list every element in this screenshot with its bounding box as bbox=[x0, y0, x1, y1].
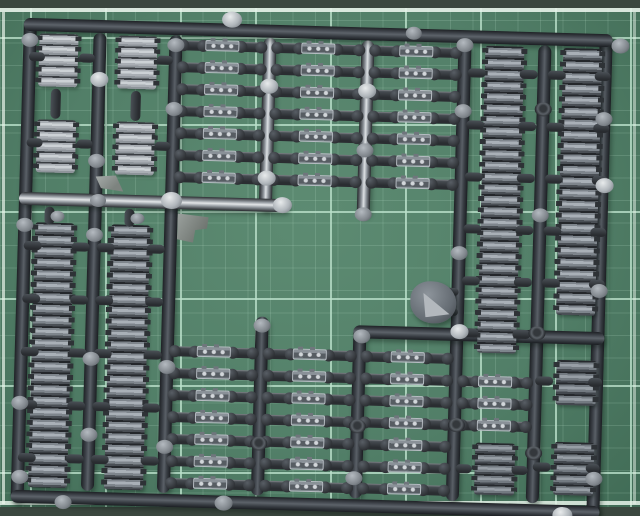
sprue-gate-stub bbox=[142, 403, 160, 412]
runner-pill bbox=[321, 482, 351, 493]
sprue-gate-stub bbox=[141, 456, 159, 465]
track-link bbox=[194, 433, 228, 445]
sprue-gate-stub bbox=[29, 52, 45, 61]
track-link bbox=[388, 439, 422, 451]
runner-pill bbox=[509, 421, 530, 432]
gate-bump bbox=[250, 436, 267, 450]
runner-pill bbox=[419, 463, 449, 474]
track-link bbox=[478, 375, 512, 387]
track-link bbox=[202, 149, 236, 161]
sprue-gate-stub bbox=[67, 401, 85, 410]
track-run-right-inner bbox=[477, 46, 525, 354]
gate-bump bbox=[595, 178, 613, 193]
track-link bbox=[290, 436, 324, 448]
runner-pill bbox=[264, 370, 294, 381]
track-link-row bbox=[182, 39, 262, 52]
runner-pill bbox=[363, 351, 393, 362]
track-link bbox=[205, 61, 239, 73]
runner-pill bbox=[418, 485, 448, 496]
runner-pill bbox=[168, 434, 196, 445]
track-link bbox=[291, 414, 325, 426]
runner-pill bbox=[429, 91, 459, 102]
track-link-row bbox=[179, 171, 259, 184]
runner-pill bbox=[420, 419, 450, 430]
track-link-row bbox=[172, 389, 252, 402]
track-link-row bbox=[374, 66, 457, 79]
runner-pill bbox=[331, 132, 361, 143]
runner-pill bbox=[422, 353, 452, 364]
gate-bump bbox=[257, 170, 275, 185]
runner-pill bbox=[235, 129, 263, 140]
sprue-gate-stub bbox=[24, 241, 42, 250]
runner-pill bbox=[360, 439, 390, 450]
track-link bbox=[203, 105, 237, 117]
track-link bbox=[299, 108, 333, 120]
sprue-gate-stub bbox=[517, 174, 535, 183]
sprue-gate-stub bbox=[511, 466, 527, 475]
sprue-gate-stub bbox=[95, 296, 113, 305]
track-link-row bbox=[265, 457, 349, 470]
track-link bbox=[477, 397, 511, 409]
track-segment-block bbox=[36, 119, 76, 173]
runner-pill bbox=[237, 63, 265, 74]
sprue-gate-stub bbox=[157, 56, 173, 65]
gate-bump bbox=[611, 38, 629, 53]
runner-pill bbox=[368, 155, 398, 166]
runner-pill bbox=[225, 479, 253, 490]
gate-bump bbox=[454, 104, 471, 118]
track-teeth-left bbox=[550, 442, 557, 495]
track-link-row bbox=[373, 88, 456, 101]
gate-bump bbox=[595, 112, 612, 126]
sprue-gate-stub bbox=[50, 89, 61, 119]
track-link bbox=[301, 42, 335, 54]
track-link bbox=[390, 351, 424, 363]
track-link bbox=[477, 419, 511, 431]
track-link-row bbox=[274, 129, 358, 142]
track-link-row bbox=[374, 44, 457, 57]
runner-pill bbox=[325, 350, 355, 361]
sprue-gate-stub bbox=[548, 70, 566, 79]
runner-pill bbox=[427, 179, 457, 190]
runner-pill bbox=[171, 346, 199, 357]
track-link bbox=[298, 152, 332, 164]
track-link bbox=[299, 130, 333, 142]
sprue-gate-stub bbox=[91, 455, 109, 464]
track-link bbox=[388, 417, 422, 429]
sprue-gate-stub bbox=[514, 278, 532, 287]
track-link bbox=[387, 461, 421, 473]
runner-pill bbox=[323, 394, 353, 405]
runner-pill bbox=[324, 372, 354, 383]
track-link-row bbox=[372, 132, 455, 145]
runner-pill bbox=[261, 480, 291, 491]
track-segment-block bbox=[117, 35, 157, 89]
track-link bbox=[197, 345, 231, 357]
track-link bbox=[397, 111, 431, 123]
runner-pill bbox=[362, 373, 392, 384]
runner-pill bbox=[228, 369, 256, 380]
sprue-gate-stub bbox=[130, 91, 141, 121]
track-link-row bbox=[182, 61, 262, 74]
track-link-row bbox=[265, 435, 349, 448]
track-link-row bbox=[275, 85, 359, 98]
gate-bump bbox=[590, 284, 607, 298]
sprue-gate-stub bbox=[462, 276, 480, 285]
track-link bbox=[202, 171, 236, 183]
runner-pill bbox=[169, 412, 197, 423]
runner-pill bbox=[430, 69, 460, 80]
gate-bump bbox=[349, 419, 366, 433]
gate-bump bbox=[50, 211, 64, 223]
sprue-gate-stub bbox=[520, 70, 538, 79]
gate-bump bbox=[585, 472, 602, 486]
gate-bump bbox=[16, 218, 33, 232]
gate-bump bbox=[358, 83, 376, 98]
gate-bump bbox=[450, 324, 468, 339]
runner-pill bbox=[420, 441, 450, 452]
track-link-row bbox=[173, 367, 253, 380]
runner-pill bbox=[235, 107, 263, 118]
sprue-gate-stub bbox=[97, 243, 115, 252]
runner-pill bbox=[421, 375, 451, 386]
gate-bump bbox=[156, 440, 173, 454]
track-link bbox=[204, 83, 238, 95]
runner-pill bbox=[270, 152, 300, 163]
sprue-gate-stub bbox=[468, 68, 486, 77]
gate-bump bbox=[273, 197, 292, 213]
runner-pill bbox=[237, 41, 265, 52]
sprue-gate-stub bbox=[533, 462, 551, 471]
track-link bbox=[293, 348, 327, 360]
runner-pill bbox=[510, 377, 531, 388]
track-link-row bbox=[372, 110, 455, 123]
runner-pill bbox=[330, 154, 360, 165]
track-link-row bbox=[266, 413, 350, 426]
gate-bump bbox=[535, 102, 552, 116]
runner-pill bbox=[169, 390, 197, 401]
sprue-gate-stub bbox=[66, 454, 84, 463]
runner-pill bbox=[360, 461, 390, 472]
gate-bump bbox=[90, 72, 108, 87]
track-link-row bbox=[273, 173, 357, 186]
runner-pill bbox=[333, 66, 363, 77]
track-link-row bbox=[181, 83, 261, 96]
track-teeth-left bbox=[112, 121, 119, 174]
sprue-gate-stub bbox=[92, 402, 110, 411]
track-link-row bbox=[274, 107, 358, 120]
sprue-gate-stub bbox=[515, 226, 533, 235]
gate-bump bbox=[130, 213, 144, 225]
track-link bbox=[193, 477, 227, 489]
track-link-row bbox=[180, 105, 260, 118]
sprue-gate-stub bbox=[147, 244, 165, 253]
gate-bump bbox=[54, 495, 71, 509]
track-link-row bbox=[171, 433, 251, 446]
track-link-row bbox=[461, 419, 527, 432]
runner-pill bbox=[371, 67, 401, 78]
runner-pill bbox=[263, 392, 293, 403]
track-link-row bbox=[365, 372, 448, 385]
sprue-gate-stub bbox=[535, 376, 553, 385]
track-link bbox=[389, 373, 423, 385]
gate-bump bbox=[532, 208, 549, 222]
track-link bbox=[205, 39, 239, 51]
runner-pill bbox=[431, 47, 461, 58]
sprue-gate-stub bbox=[18, 453, 36, 462]
track-link-row bbox=[180, 127, 260, 140]
runner-pill bbox=[263, 414, 293, 425]
track-link-row bbox=[172, 411, 252, 424]
photo-of-sprue-on-cutting-mat bbox=[0, 0, 640, 516]
gate-bump bbox=[355, 207, 372, 221]
sprue-gate-stub bbox=[466, 120, 484, 129]
track-link-row bbox=[364, 416, 447, 429]
runner-pill bbox=[227, 391, 255, 402]
sprue-gate-stub bbox=[546, 122, 564, 131]
sprue-gate-stub bbox=[543, 226, 561, 235]
track-teeth-left bbox=[471, 443, 478, 495]
track-link bbox=[195, 389, 229, 401]
sprue-gate-stub bbox=[518, 122, 536, 131]
runner-pill bbox=[369, 111, 399, 122]
track-link bbox=[398, 67, 432, 79]
sprue-gate-stub bbox=[463, 224, 481, 233]
gate-bump bbox=[88, 154, 105, 168]
runner-pill bbox=[271, 108, 301, 119]
runner-pill bbox=[371, 45, 401, 56]
track-link-row bbox=[174, 345, 254, 358]
runner-pill bbox=[168, 456, 196, 467]
runner-pill bbox=[226, 457, 254, 468]
track-link-row bbox=[170, 477, 250, 490]
track-link-row bbox=[362, 482, 445, 495]
track-link-row bbox=[366, 350, 449, 363]
track-link-row bbox=[264, 479, 348, 492]
runner-pill bbox=[361, 395, 391, 406]
gate-bump bbox=[214, 495, 232, 510]
flat-bracket-part-b bbox=[177, 212, 209, 243]
track-segment-block bbox=[38, 33, 78, 87]
track-link-row bbox=[266, 391, 350, 404]
track-link-row bbox=[171, 455, 251, 468]
gate-bump bbox=[450, 246, 467, 260]
runner-pill bbox=[428, 157, 458, 168]
track-link bbox=[386, 483, 420, 495]
track-teeth-left bbox=[474, 46, 489, 353]
track-link-row bbox=[276, 63, 360, 76]
runner-pill bbox=[428, 135, 458, 146]
runner-pill bbox=[367, 177, 397, 188]
track-link bbox=[301, 64, 335, 76]
runner-pill bbox=[227, 413, 255, 424]
track-link bbox=[195, 411, 229, 423]
runner-pill bbox=[509, 399, 530, 410]
track-link bbox=[297, 174, 331, 186]
sprue-gate-stub bbox=[70, 295, 88, 304]
sprue-gate-stub bbox=[76, 139, 92, 148]
runner-pill bbox=[333, 44, 363, 55]
runner-pill bbox=[331, 110, 361, 121]
runner-pill bbox=[329, 176, 359, 187]
track-teeth-right bbox=[513, 47, 528, 354]
sprue-gate-stub bbox=[22, 294, 40, 303]
track-link-row bbox=[179, 149, 259, 162]
track-link-row bbox=[273, 151, 357, 164]
runner-pill bbox=[359, 483, 389, 494]
sprue-gate-stub bbox=[26, 138, 42, 147]
track-teeth-left bbox=[552, 360, 559, 405]
sprue-gate-stub bbox=[595, 72, 611, 81]
track-link bbox=[196, 367, 230, 379]
track-link bbox=[194, 455, 228, 467]
track-link bbox=[290, 458, 324, 470]
runner-pill bbox=[262, 458, 292, 469]
sprue-gate-stub bbox=[144, 350, 162, 359]
track-run-left-inner bbox=[104, 224, 150, 490]
sprue-gate-stub bbox=[465, 172, 483, 181]
runner-pill bbox=[176, 150, 204, 161]
sprue-gate-stub bbox=[456, 464, 472, 473]
track-link-row bbox=[363, 460, 446, 473]
runner-pill bbox=[273, 64, 303, 75]
sprue-gate-stub bbox=[588, 378, 602, 387]
track-segment-block bbox=[115, 121, 155, 175]
runner-pill bbox=[167, 478, 195, 489]
runner-pill bbox=[229, 347, 257, 358]
runner-pill bbox=[322, 438, 352, 449]
track-segment-block bbox=[474, 443, 515, 496]
runner-pill bbox=[322, 460, 352, 471]
track-link bbox=[396, 155, 430, 167]
runner-pill bbox=[178, 84, 206, 95]
sprue-gate-stub bbox=[72, 242, 90, 251]
track-link-row bbox=[276, 41, 360, 54]
sprue-gate-stub bbox=[154, 142, 170, 151]
track-link-row bbox=[462, 375, 528, 388]
gate-bump bbox=[525, 446, 542, 460]
runner-pill bbox=[429, 113, 459, 124]
runner-pill bbox=[369, 133, 399, 144]
gate-bump bbox=[82, 352, 99, 366]
gate-bump bbox=[167, 38, 184, 52]
track-link bbox=[397, 89, 431, 101]
sprue-gate-stub bbox=[21, 347, 39, 356]
track-link bbox=[291, 392, 325, 404]
track-link-row bbox=[268, 347, 352, 360]
track-link-row bbox=[370, 176, 453, 189]
runner-pill bbox=[273, 42, 303, 53]
sprue-gate-stub bbox=[542, 278, 560, 287]
runner-pill bbox=[177, 128, 205, 139]
runner-mid-left bbox=[19, 191, 289, 212]
track-link bbox=[203, 127, 237, 139]
track-link bbox=[389, 395, 423, 407]
sprue-gate-stub bbox=[145, 297, 163, 306]
track-link bbox=[399, 45, 433, 57]
gate-bump bbox=[253, 318, 270, 332]
track-link-row bbox=[461, 397, 527, 410]
runner-pill bbox=[176, 172, 204, 183]
gate-bump bbox=[86, 228, 103, 242]
gate-bump bbox=[353, 329, 370, 343]
track-link bbox=[289, 480, 323, 492]
runner-pill bbox=[179, 62, 207, 73]
track-teeth-left bbox=[114, 35, 121, 88]
sprue-gate-stub bbox=[79, 53, 95, 62]
track-link bbox=[300, 86, 334, 98]
gate-bump bbox=[260, 78, 278, 93]
track-link bbox=[292, 370, 326, 382]
track-link-row bbox=[371, 154, 454, 167]
sprue-gate-stub bbox=[590, 228, 606, 237]
track-link-row bbox=[364, 394, 447, 407]
track-link-row bbox=[267, 369, 351, 382]
sprue-gate-stub bbox=[545, 174, 563, 183]
runner-pill bbox=[421, 397, 451, 408]
gate-bump bbox=[456, 38, 473, 52]
runner-pill bbox=[234, 151, 262, 162]
gate-bump bbox=[80, 428, 97, 442]
runner-pill bbox=[265, 348, 295, 359]
track-link bbox=[395, 177, 429, 189]
track-link bbox=[396, 133, 430, 145]
runner-pill bbox=[271, 130, 301, 141]
sprue-layer bbox=[0, 0, 640, 516]
track-link-row bbox=[363, 438, 446, 451]
